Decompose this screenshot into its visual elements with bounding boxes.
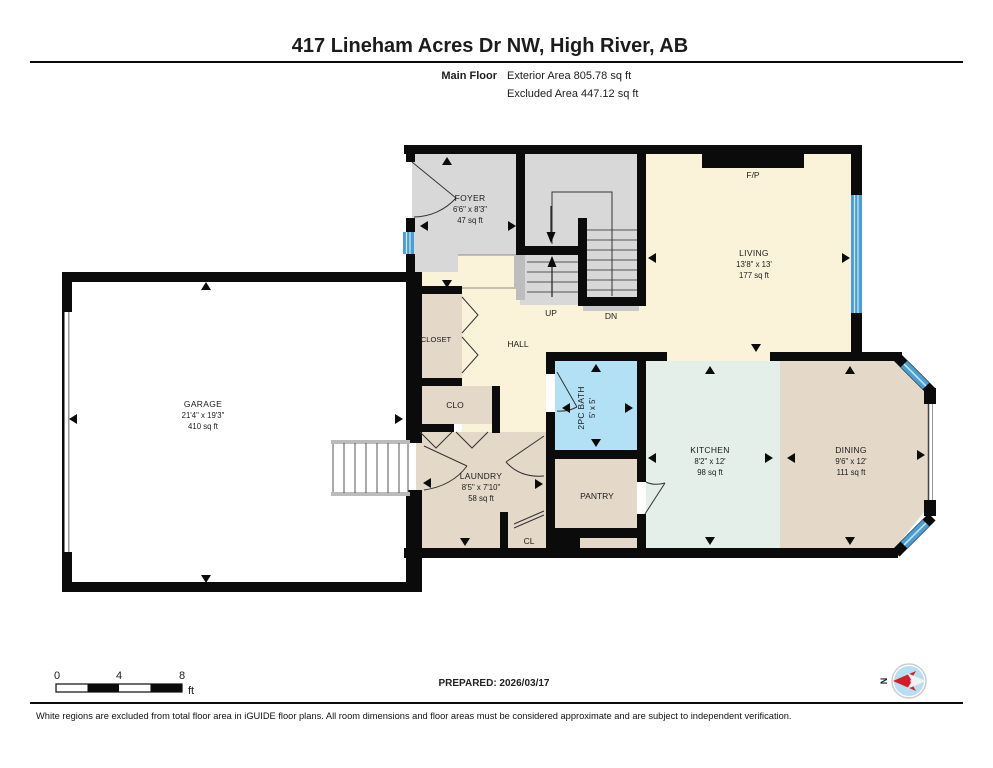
svg-text:LAUNDRY: LAUNDRY bbox=[460, 471, 503, 481]
svg-text:FOYER: FOYER bbox=[455, 193, 486, 203]
header-divider bbox=[30, 61, 963, 63]
cl-label: CL bbox=[524, 536, 535, 546]
scale-tick-8: 8 bbox=[179, 670, 185, 682]
svg-text:LIVING: LIVING bbox=[739, 248, 769, 258]
living-window bbox=[851, 195, 862, 313]
garage-door bbox=[62, 312, 70, 552]
excluded-area-text: Excluded Area 447.12 sq ft bbox=[507, 88, 638, 100]
svg-text:KITCHEN: KITCHEN bbox=[690, 445, 729, 455]
prepared-date: PREPARED: 2026/03/17 bbox=[439, 678, 550, 689]
pantry-label: PANTRY bbox=[580, 491, 614, 501]
floor-label: Main Floor bbox=[441, 70, 497, 82]
svg-text:DINING: DINING bbox=[835, 445, 867, 455]
exterior-area-text: Exterior Area 805.78 sq ft bbox=[507, 70, 631, 82]
svg-text:2PC BATH: 2PC BATH bbox=[576, 386, 586, 429]
room-fills bbox=[66, 154, 929, 582]
dining-label: DINING 9'6" x 12' 111 sq ft bbox=[835, 445, 867, 477]
garage-floor bbox=[66, 282, 406, 582]
foyer-label: FOYER 6'6" x 8'3" 47 sq ft bbox=[453, 193, 487, 225]
svg-text:98 sq ft: 98 sq ft bbox=[697, 468, 723, 477]
stairs-up-label: UP bbox=[545, 308, 557, 318]
stairs-down-label: DN bbox=[605, 311, 617, 321]
scale-tick-0: 0 bbox=[54, 670, 60, 682]
svg-text:47 sq ft: 47 sq ft bbox=[457, 216, 483, 225]
hall-label: HALL bbox=[507, 339, 529, 349]
svg-text:8'5" x 7'10": 8'5" x 7'10" bbox=[462, 483, 501, 492]
header: 417 Lineham Acres Dr NW, High River, AB … bbox=[30, 35, 963, 100]
svg-text:8'2" x 12': 8'2" x 12' bbox=[694, 457, 726, 466]
svg-text:GARAGE: GARAGE bbox=[184, 399, 222, 409]
footer-divider bbox=[30, 702, 963, 704]
disclaimer-text: White regions are excluded from total fl… bbox=[36, 711, 792, 721]
foyer-archway bbox=[458, 255, 516, 288]
footer: 0 4 8 ft PREPARED: 2026/03/17 N White re… bbox=[30, 664, 963, 721]
floor-plan-page: 417 Lineham Acres Dr NW, High River, AB … bbox=[0, 0, 993, 768]
garage-stairs bbox=[331, 440, 410, 496]
bay-window-right bbox=[929, 404, 933, 500]
compass-north-label: N bbox=[879, 678, 889, 685]
closet-label: CLOSET bbox=[421, 335, 452, 344]
svg-text:6'6" x 8'3": 6'6" x 8'3" bbox=[453, 205, 487, 214]
svg-text:5' x 5': 5' x 5' bbox=[588, 398, 597, 418]
svg-text:58 sq ft: 58 sq ft bbox=[468, 494, 494, 503]
svg-text:111 sq ft: 111 sq ft bbox=[837, 468, 867, 477]
svg-text:21'4" x 19'3": 21'4" x 19'3" bbox=[182, 411, 225, 420]
scale-unit: ft bbox=[188, 685, 194, 697]
compass-icon: N bbox=[879, 664, 926, 698]
svg-text:410 sq ft: 410 sq ft bbox=[188, 422, 219, 431]
svg-text:9'6" x 12': 9'6" x 12' bbox=[835, 457, 867, 466]
scale-tick-4: 4 bbox=[116, 670, 122, 682]
page-title: 417 Lineham Acres Dr NW, High River, AB bbox=[292, 35, 688, 57]
clo-label: CLO bbox=[446, 400, 464, 410]
living-label: LIVING 13'8" x 13' 177 sq ft bbox=[736, 248, 772, 280]
svg-text:13'8" x 13': 13'8" x 13' bbox=[736, 260, 772, 269]
scale-bar: 0 4 8 ft bbox=[54, 670, 194, 697]
foyer-window bbox=[403, 232, 414, 254]
fireplace-label: F/P bbox=[746, 170, 760, 180]
svg-text:177 sq ft: 177 sq ft bbox=[739, 271, 770, 280]
